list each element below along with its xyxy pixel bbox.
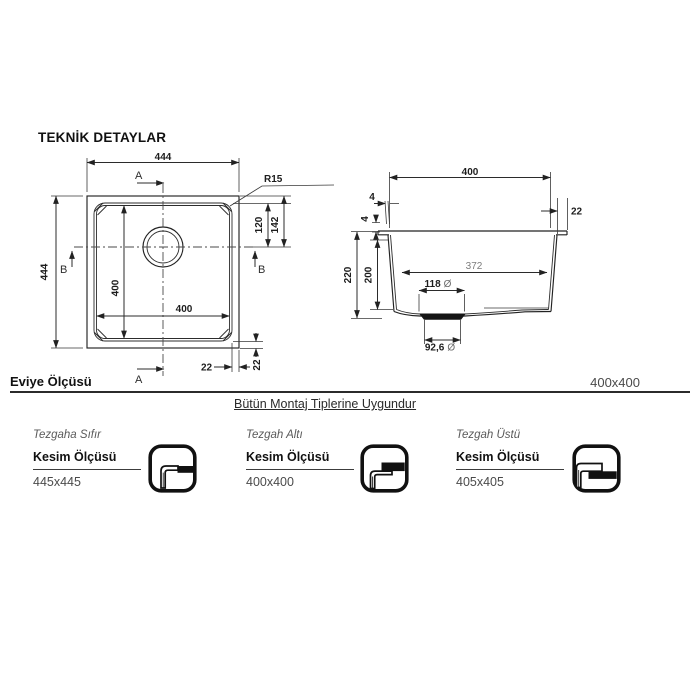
walls-outer	[388, 235, 557, 312]
svg-text:22: 22	[201, 363, 213, 374]
mount-type-label: Tezgah Altı	[246, 429, 376, 441]
mount-type-label: Tezgaha Sıfır	[33, 429, 163, 441]
cut-size-value: 400x400	[246, 475, 376, 489]
cut-size-label: Kesim Ölçüsü	[456, 450, 564, 470]
under-mount-icon	[360, 444, 409, 493]
cut-size-value: 405x405	[456, 475, 586, 489]
countertop-bar	[589, 471, 617, 479]
svg-text:200: 200	[364, 266, 375, 283]
svg-text:400: 400	[176, 304, 193, 315]
mount-option-flush: Tezgaha Sıfır Kesim Ölçüsü 445x445	[33, 429, 163, 489]
svg-text:4: 4	[369, 192, 375, 203]
dim-section-top-width: 400	[390, 167, 551, 228]
top-mount-icon	[572, 444, 621, 493]
svg-text:R15: R15	[264, 174, 283, 185]
dim-rim-overhang: 22	[541, 198, 583, 234]
svg-text:92,6Ø: 92,6Ø	[425, 343, 455, 354]
section-a-marks: A A	[135, 170, 164, 386]
section-view: 400 4 4 22	[343, 167, 583, 354]
cut-size-label: Kesim Ölçüsü	[33, 450, 141, 470]
svg-text:120: 120	[254, 216, 265, 233]
svg-text:220: 220	[343, 266, 354, 283]
page-title: TEKNİK DETAYLAR	[38, 130, 166, 145]
cut-size-label: Kesim Ölçüsü	[246, 450, 354, 470]
dim-inner-width-section: 372	[402, 261, 547, 273]
svg-text:444: 444	[40, 263, 51, 280]
mount-option-top: Tezgah Üstü Kesim Ölçüsü 405x405	[456, 429, 586, 489]
dim-inner-height: 400	[111, 206, 125, 339]
sink-size-value: 400x400	[555, 375, 640, 390]
dim-flange-thickness: 4	[360, 215, 380, 239]
svg-text:444: 444	[155, 152, 172, 163]
technical-drawing: 444 444 A A B B	[0, 148, 700, 396]
dim-drain-hole: 92,6Ø	[425, 320, 461, 354]
divider-rule	[10, 391, 690, 393]
dim-drain-offsets: 120 142	[233, 196, 291, 247]
dim-rim-vertical: 22	[233, 333, 263, 371]
flush-mount-icon	[148, 444, 197, 493]
dim-total-depth: 220	[343, 232, 382, 319]
svg-text:118Ø: 118Ø	[425, 279, 452, 290]
top-view: 444 444 A A B B	[40, 152, 335, 386]
mount-option-under: Tezgah Altı Kesim Ölçüsü 400x400	[246, 429, 376, 489]
svg-text:A: A	[135, 170, 143, 182]
radius-callout: R15	[230, 174, 334, 206]
svg-text:A: A	[135, 374, 143, 386]
svg-text:B: B	[258, 264, 265, 276]
dim-wall-thickness: 4	[369, 192, 399, 224]
cut-size-value: 445x445	[33, 475, 163, 489]
countertop-bar	[382, 463, 405, 472]
svg-text:B: B	[60, 264, 67, 276]
mounting-note: Bütün Montaj Tiplerine Uygundur	[234, 397, 416, 411]
svg-text:22: 22	[252, 359, 263, 371]
svg-text:400: 400	[111, 279, 122, 296]
sink-size-label: Eviye Ölçüsü	[10, 374, 92, 389]
svg-text:4: 4	[360, 216, 371, 222]
mount-type-label: Tezgah Üstü	[456, 429, 586, 441]
dim-drain-recess: 118Ø	[419, 279, 465, 312]
svg-text:400: 400	[462, 167, 479, 178]
spec-sheet: TEKNİK DETAYLAR 4	[0, 0, 700, 700]
drain-fitting	[419, 314, 466, 320]
flange	[378, 231, 567, 235]
svg-text:372: 372	[466, 261, 483, 272]
countertop-bar	[178, 466, 194, 473]
svg-text:142: 142	[270, 216, 281, 233]
dim-inner-depth: 200	[364, 240, 394, 310]
svg-text:22: 22	[571, 207, 583, 218]
